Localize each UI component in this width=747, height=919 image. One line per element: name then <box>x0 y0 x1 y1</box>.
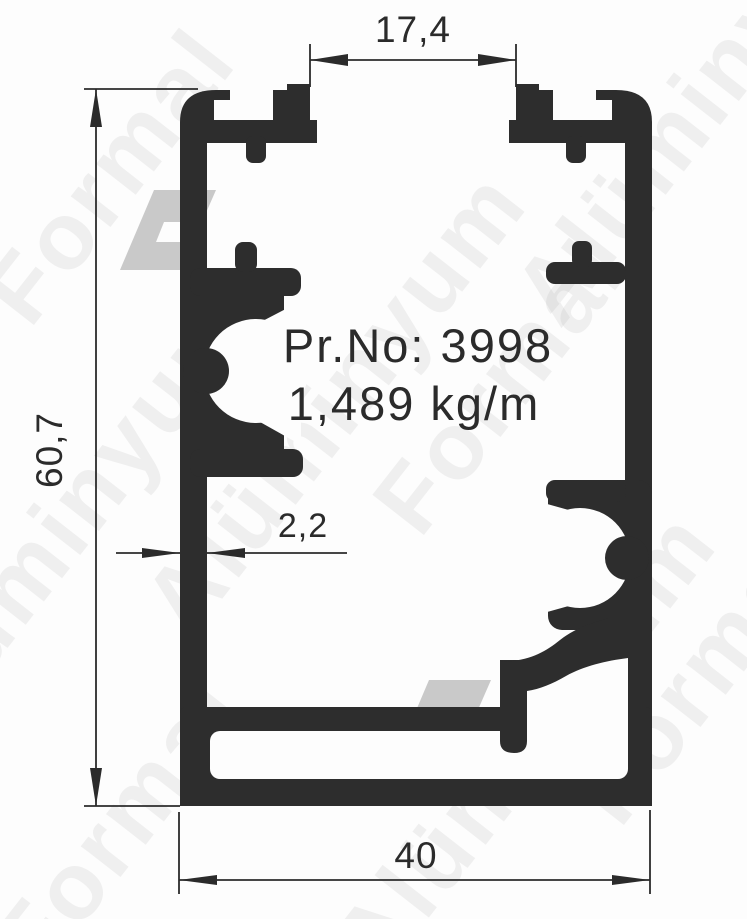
arrowhead-right <box>478 54 516 66</box>
dimension-value: 17,4 <box>375 9 451 50</box>
left-screw-boss-arm-top <box>190 268 301 296</box>
top-right-nub <box>566 136 586 163</box>
dimension-value: 60,7 <box>29 412 70 488</box>
dimension-value: 40 <box>394 835 437 876</box>
top-right-hook-tab <box>516 84 553 122</box>
dimension-value: 2,2 <box>278 507 328 545</box>
arrowhead-right <box>612 875 650 885</box>
arrowhead-left <box>179 875 217 885</box>
drawing-page: Formal Alüminyum Formal Alüminyum Formal… <box>0 0 747 919</box>
top-left-nub <box>246 136 266 163</box>
left-screw-boss-top-nub <box>235 242 257 272</box>
arrowhead-left <box>310 54 348 66</box>
top-right-web <box>509 120 623 143</box>
left-channel-bump <box>183 348 229 394</box>
right-wall-step <box>608 612 652 648</box>
right-screw-channel-mouth <box>540 502 583 614</box>
dimension-top-opening: 17,4 <box>310 9 516 87</box>
right-wall <box>625 138 652 806</box>
top-left-hook-tab <box>273 84 310 122</box>
unit-weight-text: 1,489 kg/m <box>288 377 541 430</box>
right-upper-arm-nub <box>572 241 592 267</box>
technical-drawing-canvas: Formal Alüminyum Formal Alüminyum Formal… <box>0 0 747 919</box>
right-screw-boss-arm-top <box>546 480 626 502</box>
right-channel-bump <box>605 536 649 580</box>
product-number-text: Pr.No: 3998 <box>283 319 553 372</box>
left-screw-boss-arm-bottom <box>190 449 303 477</box>
